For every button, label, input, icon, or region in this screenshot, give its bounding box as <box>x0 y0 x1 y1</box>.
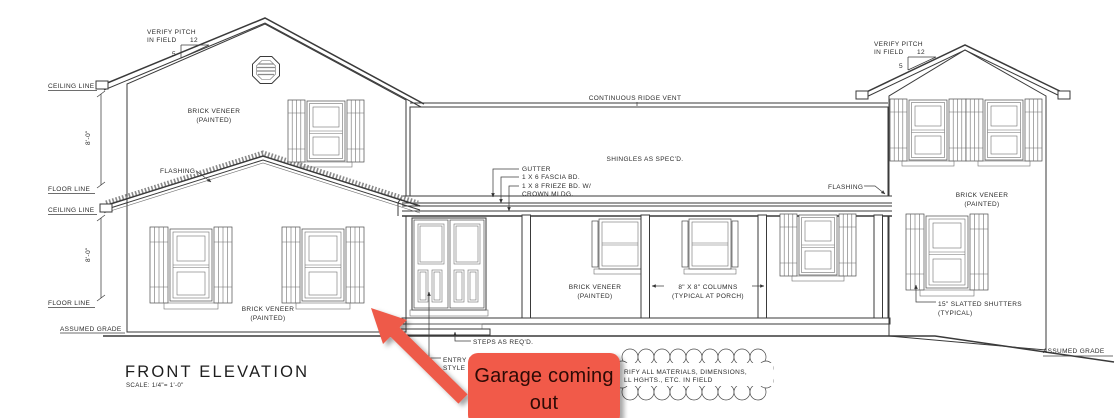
label-pitch-rise: 5 <box>899 63 903 70</box>
drawing-title: FRONT ELEVATION <box>125 363 309 381</box>
label-frieze: 1 X 8 FRIEZE BD. W/ <box>522 183 591 190</box>
window <box>288 100 364 167</box>
label-floor-line: FLOOR LINE <box>48 300 90 307</box>
label-assumed-grade: ASSUMED GRADE <box>60 326 122 333</box>
octagon-gable-vent-icon <box>253 57 280 84</box>
label-brick-veneer: BRICK VENEER <box>188 108 241 115</box>
eave-return <box>100 204 112 212</box>
garage-annotation: Garage coming out <box>468 353 620 418</box>
label-shutters: 15" SLATTED SHUTTERS <box>938 301 1022 308</box>
label-painted: (PAINTED) <box>250 315 285 322</box>
drawing-scale: SCALE: 1/4"= 1'-0" <box>126 382 184 389</box>
label-painted: (PAINTED) <box>577 293 612 300</box>
window <box>966 99 1042 166</box>
label-ceiling-line: CEILING LINE <box>48 207 95 214</box>
garage-callout-text-line2: out <box>530 392 559 414</box>
pitch-symbol-right <box>908 57 936 70</box>
entry-doors <box>410 218 488 316</box>
cloud-note-line1: RIFY ALL MATERIALS, DIMENSIONS, <box>624 369 747 376</box>
label-in-field: IN FIELD <box>147 37 177 44</box>
eave-return <box>856 91 868 99</box>
window <box>282 227 364 309</box>
window <box>150 227 232 309</box>
main-roof <box>410 103 888 196</box>
label-dim-8ft: 8'-0" <box>85 247 92 262</box>
label-fascia: 1 X 6 FASCIA BD. <box>522 174 580 181</box>
label-ceiling-line: CEILING LINE <box>48 83 95 90</box>
porch-window <box>682 219 738 274</box>
label-painted: (PAINTED) <box>196 117 231 124</box>
label-flashing: FLASHING <box>160 168 195 175</box>
garage-annotation-arrow <box>371 308 468 404</box>
ridge-vent-lines <box>410 103 888 107</box>
lower-left-gable-roof <box>100 153 420 213</box>
label-gutter: GUTTER <box>522 166 551 173</box>
label-steps: STEPS AS REQ'D. <box>473 339 533 346</box>
cloud-note-line2: LL HGHTS., ETC. IN FIELD <box>624 377 713 384</box>
label-pitch-run: 12 <box>190 37 198 44</box>
porch-window <box>780 214 856 281</box>
eave-return <box>1058 91 1070 99</box>
label-shingles: SHINGLES AS SPEC'D. <box>607 156 684 163</box>
label-verify-pitch: VERIFY PITCH <box>147 29 196 36</box>
label-pitch-run: 12 <box>917 49 925 56</box>
label-crown: CROWN MLDG. <box>522 191 574 198</box>
label-columns: 8" X 8" COLUMNS <box>678 284 738 291</box>
porch-slab-steps <box>398 318 890 335</box>
porch-fascia-band <box>398 196 892 216</box>
label-entry-fragment: STYLE B <box>443 365 472 372</box>
label-shutters-typ: (TYPICAL) <box>938 310 973 317</box>
label-pitch-rise: 5 <box>172 51 176 58</box>
label-dim-8ft: 8'-0" <box>85 130 92 145</box>
label-verify-pitch: VERIFY PITCH <box>874 41 923 48</box>
label-in-field: IN FIELD <box>874 49 904 56</box>
label-brick-veneer: BRICK VENEER <box>242 306 295 313</box>
elevation-sheet: VERIFY PITCH IN FIELD 12 5 VERIFY PITCH … <box>0 0 1116 418</box>
eave-return <box>96 81 108 89</box>
porch-window <box>592 219 648 274</box>
window <box>906 214 988 296</box>
label-brick-veneer: BRICK VENEER <box>956 192 1009 199</box>
label-columns-typ: (TYPICAL AT PORCH) <box>672 293 744 300</box>
garage-callout-text-line1: Garage coming <box>474 365 613 387</box>
window <box>890 99 966 166</box>
label-brick-veneer: BRICK VENEER <box>569 284 622 291</box>
label-painted: (PAINTED) <box>964 201 999 208</box>
label-assumed-grade: ASSUMED GRADE <box>1043 348 1105 355</box>
elevation-drawing: VERIFY PITCH IN FIELD 12 5 VERIFY PITCH … <box>0 0 1116 418</box>
label-flashing: FLASHING <box>828 184 863 191</box>
label-ridge-vent: CONTINUOUS RIDGE VENT <box>589 95 682 102</box>
label-floor-line: FLOOR LINE <box>48 186 90 193</box>
revision-cloud: RIFY ALL MATERIALS, DIMENSIONS, LL HGHTS… <box>615 349 773 400</box>
